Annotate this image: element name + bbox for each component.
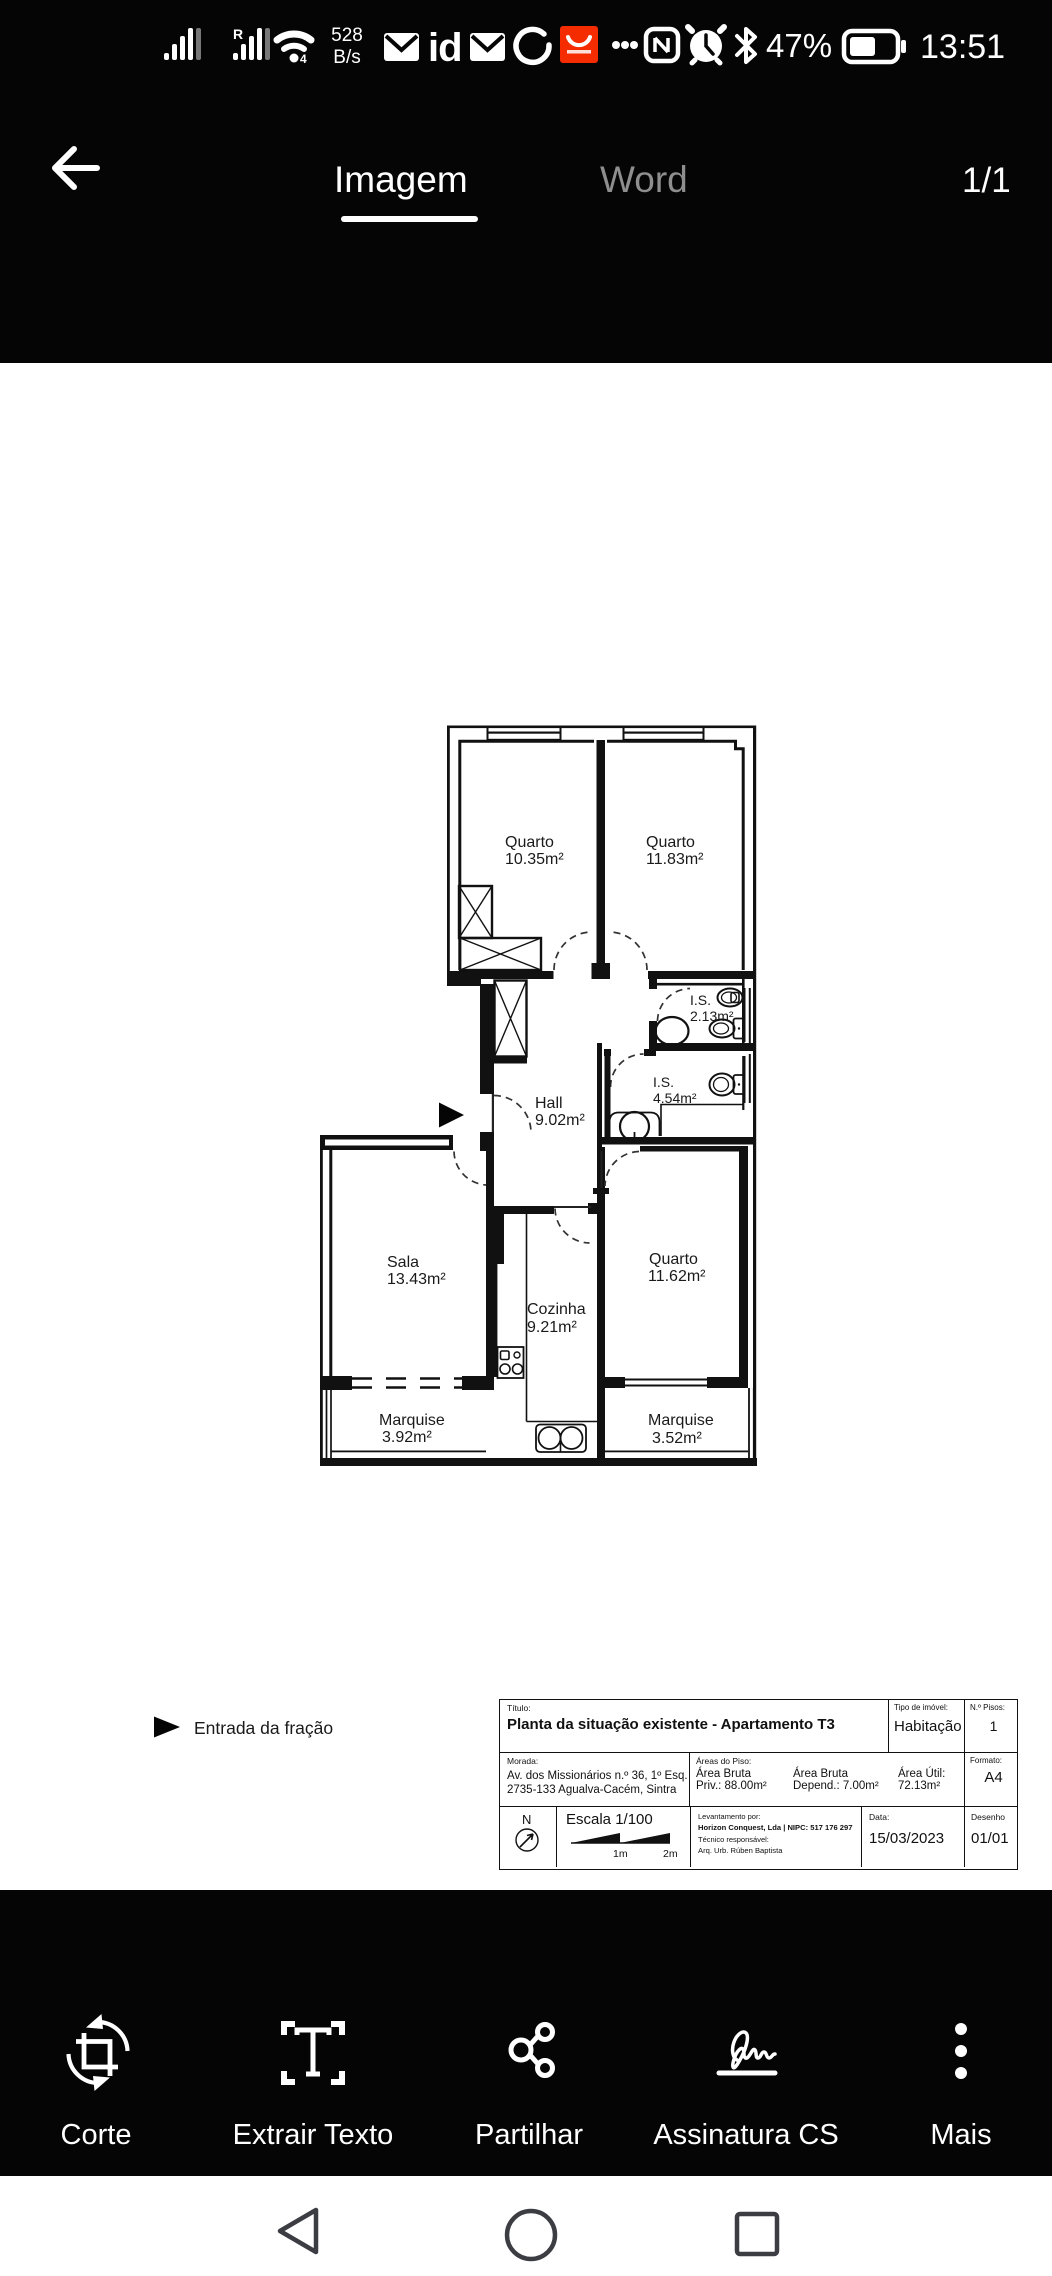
svg-text:R: R <box>233 26 243 42</box>
svg-text:Partilhar: Partilhar <box>475 2119 583 2151</box>
svg-text:Marquise: Marquise <box>648 1412 714 1429</box>
svg-text:Extrair Texto: Extrair Texto <box>233 2119 394 2151</box>
svg-text:3.52m²: 3.52m² <box>652 1430 702 1447</box>
svg-text:Assinatura CS: Assinatura CS <box>653 2119 838 2151</box>
svg-text:I.S.: I.S. <box>653 1074 674 1090</box>
svg-text:Quarto: Quarto <box>649 1251 698 1268</box>
svg-text:Marquise: Marquise <box>379 1412 445 1429</box>
svg-text:Mais: Mais <box>930 2119 991 2151</box>
svg-text:528: 528 <box>331 25 363 46</box>
svg-text:Quarto: Quarto <box>646 834 695 851</box>
svg-text:11.62m²: 11.62m² <box>648 1268 706 1285</box>
svg-text:Quarto: Quarto <box>505 834 554 851</box>
svg-text:9.02m²: 9.02m² <box>535 1112 585 1129</box>
svg-text:2m: 2m <box>663 1848 678 1860</box>
svg-text:Corte: Corte <box>61 2119 132 2151</box>
svg-text:13:51: 13:51 <box>920 28 1005 66</box>
svg-text:Hall: Hall <box>535 1095 563 1112</box>
svg-text:3.92m²: 3.92m² <box>382 1429 432 1446</box>
svg-text:id: id <box>428 26 462 70</box>
svg-text:Entrada da fração: Entrada da fração <box>194 1718 333 1738</box>
svg-text:4.54m²: 4.54m² <box>653 1090 697 1106</box>
svg-text:B/s: B/s <box>333 47 360 68</box>
svg-text:Cozinha: Cozinha <box>527 1301 586 1318</box>
svg-text:2.13m²: 2.13m² <box>690 1008 734 1024</box>
svg-text:11.83m²: 11.83m² <box>646 851 704 868</box>
svg-text:4: 4 <box>300 52 307 66</box>
svg-text:1m: 1m <box>613 1848 628 1860</box>
svg-text:Imagem: Imagem <box>334 159 468 200</box>
svg-text:N: N <box>522 1812 531 1827</box>
svg-text:Word: Word <box>600 159 688 200</box>
svg-text:9.21m²: 9.21m² <box>527 1319 577 1336</box>
svg-text:10.35m²: 10.35m² <box>505 851 564 868</box>
svg-text:1/1: 1/1 <box>962 161 1011 200</box>
svg-text:I.S.: I.S. <box>690 992 711 1008</box>
svg-text:47%: 47% <box>766 27 832 64</box>
svg-text:Sala: Sala <box>387 1254 419 1271</box>
svg-text:13.43m²: 13.43m² <box>387 1271 446 1288</box>
